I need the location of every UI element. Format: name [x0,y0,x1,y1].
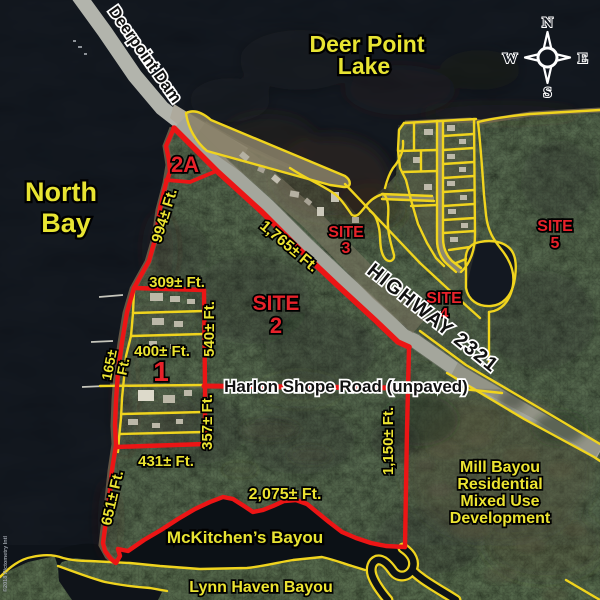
svg-text:Mixed Use: Mixed Use [460,493,539,510]
svg-text:2,075± Ft.: 2,075± Ft. [249,486,322,503]
svg-text:1: 1 [153,356,169,387]
svg-text:N: N [542,15,553,31]
svg-text:Mill Bayou: Mill Bayou [460,459,540,476]
svg-text:S: S [543,85,551,101]
svg-text:SITE: SITE [253,292,300,315]
svg-text:Development: Development [450,510,551,527]
svg-text:Bay: Bay [41,208,91,238]
svg-text:5: 5 [551,235,560,252]
svg-text:Harlon Shope Road (unpaved): Harlon Shope Road (unpaved) [224,377,468,396]
svg-text:McKitchen’s Bayou: McKitchen’s Bayou [167,528,323,547]
svg-text:2A: 2A [171,152,199,177]
svg-text:1,150± Ft.: 1,150± Ft. [380,407,397,475]
svg-text:540± Ft.: 540± Ft. [201,301,218,357]
svg-text:357± Ft.: 357± Ft. [199,394,216,450]
svg-text:Ft.: Ft. [114,357,133,377]
svg-text:Lynn Haven Bayou: Lynn Haven Bayou [189,579,332,596]
svg-text:3: 3 [342,240,351,257]
svg-text:SITE: SITE [328,224,364,241]
svg-text:Lake: Lake [338,53,390,79]
svg-text:E: E [578,51,588,67]
svg-text:W: W [503,51,518,67]
svg-text:309± Ft.: 309± Ft. [149,274,205,291]
svg-text:431± Ft.: 431± Ft. [138,453,194,470]
svg-text:©2018 Pictometry Intl: ©2018 Pictometry Intl [2,536,9,592]
svg-text:2: 2 [270,313,282,338]
svg-text:North: North [25,177,97,207]
svg-text:SITE: SITE [537,218,573,235]
svg-text:Residential: Residential [457,476,542,493]
